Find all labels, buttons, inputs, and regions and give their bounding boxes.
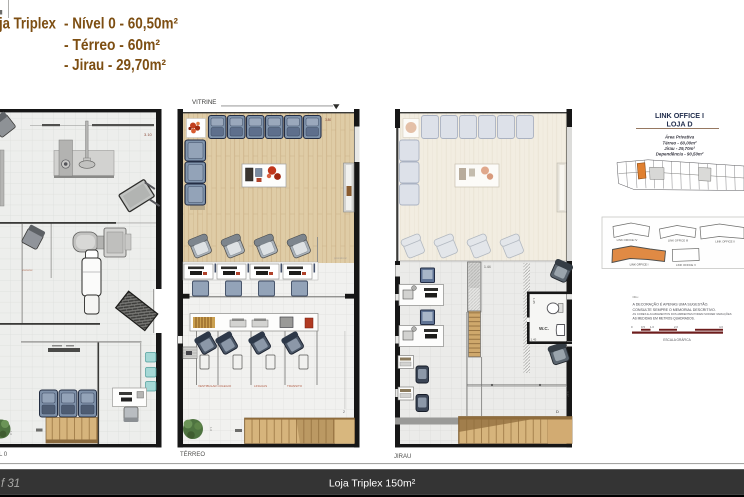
svg-text:ESCALA GRÁFICA: ESCALA GRÁFICA bbox=[663, 338, 691, 342]
svg-text:1.0: 1.0 bbox=[209, 427, 213, 432]
svg-text:JIRAU: JIRAU bbox=[394, 454, 411, 460]
svg-text:Jirau - 29,70m²: Jirau - 29,70m² bbox=[664, 146, 695, 151]
svg-text:LINK OFFICE III: LINK OFFICE III bbox=[668, 239, 689, 243]
svg-text:3.80: 3.80 bbox=[325, 118, 331, 122]
svg-text:Obs.:: Obs.: bbox=[633, 295, 640, 299]
svg-text:1.44: 1.44 bbox=[484, 265, 491, 269]
svg-text:VESTIBULAR COLEGIO: VESTIBULAR COLEGIO bbox=[198, 384, 232, 388]
svg-text:- Térreo - 60m²: - Térreo - 60m² bbox=[64, 37, 160, 54]
svg-text:Dependência - 90,50m²: Dependência - 90,50m² bbox=[656, 151, 704, 156]
svg-text:LINK OFFICE V: LINK OFFICE V bbox=[676, 263, 696, 267]
svg-text:L 0: L 0 bbox=[0, 452, 8, 458]
svg-text:2.0: 2.0 bbox=[674, 325, 678, 329]
svg-text:Loja Triplex 150m²: Loja Triplex 150m² bbox=[329, 478, 416, 490]
svg-text:TRANSITO: TRANSITO bbox=[287, 384, 303, 388]
svg-text:3.10: 3.10 bbox=[144, 132, 153, 137]
svg-text:promob.inc: promob.inc bbox=[334, 256, 348, 260]
svg-text:2: 2 bbox=[343, 410, 345, 414]
svg-text:LINGUAS: LINGUAS bbox=[254, 384, 267, 388]
svg-text:TÉRREO: TÉRREO bbox=[180, 451, 205, 458]
svg-text:A DECORAÇÃO É APENAS UMA SUGES: A DECORAÇÃO É APENAS UMA SUGESTÃO. bbox=[633, 302, 709, 307]
svg-text:1.25: 1.25 bbox=[532, 298, 536, 304]
svg-text:4.17: 4.17 bbox=[566, 391, 570, 397]
svg-text:- Nível 0 - 60,50m²: - Nível 0 - 60,50m² bbox=[64, 16, 178, 33]
svg-text:ja Triplex: ja Triplex bbox=[0, 16, 56, 33]
svg-text:- Jirau - 29,70m²: - Jirau - 29,70m² bbox=[64, 57, 166, 74]
svg-text:1.0: 1.0 bbox=[650, 325, 654, 329]
svg-text:f 31: f 31 bbox=[1, 478, 20, 490]
svg-text:4.0: 4.0 bbox=[719, 325, 723, 329]
svg-text:Área Privativa: Área Privativa bbox=[664, 135, 695, 140]
svg-text:LINK OFFICE II: LINK OFFICE II bbox=[715, 240, 735, 244]
svg-text:xxxxxxx: xxxxxxx bbox=[22, 268, 33, 272]
svg-text:VITRINE: VITRINE bbox=[192, 99, 216, 106]
svg-text:LINK OFFICE I: LINK OFFICE I bbox=[630, 263, 649, 267]
svg-text:W.C.: W.C. bbox=[539, 326, 549, 331]
svg-text:Térreo - 60,00m²: Térreo - 60,00m² bbox=[663, 140, 697, 145]
svg-text:1.0: 1.0 bbox=[9, 431, 13, 436]
svg-text:AS MEDIDAS EM METROS QUADRADOS: AS MEDIDAS EM METROS QUADRADOS. bbox=[633, 316, 695, 320]
svg-text:CONSULTE SEMPRE O MEMORIAL DES: CONSULTE SEMPRE O MEMORIAL DESCRITIVO. bbox=[633, 308, 716, 312]
svg-text:LOJA D: LOJA D bbox=[666, 120, 692, 129]
svg-text:LINK OFFICE IV: LINK OFFICE IV bbox=[617, 238, 638, 242]
svg-text:0.5: 0.5 bbox=[641, 325, 645, 329]
svg-text:D: D bbox=[556, 409, 559, 414]
svg-text:1.45: 1.45 bbox=[531, 338, 537, 342]
